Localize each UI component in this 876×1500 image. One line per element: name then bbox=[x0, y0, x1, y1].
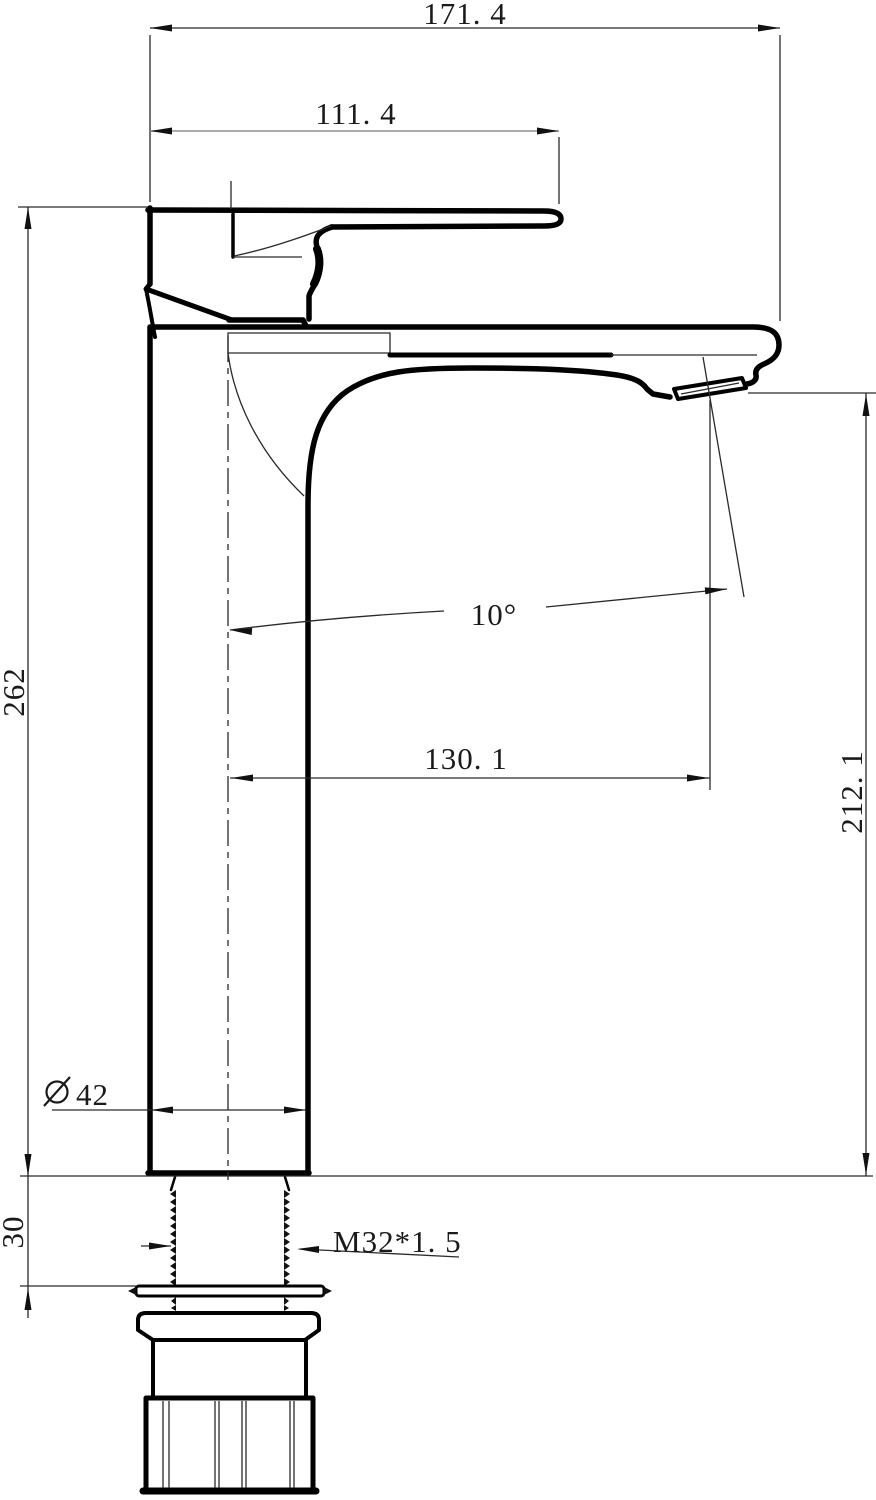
dim-label-outlet-angle: 10° bbox=[471, 597, 517, 632]
dimension-overall-height: 262 bbox=[0, 207, 148, 1176]
dimension-shank-length: 30 bbox=[0, 1176, 136, 1318]
dimension-outlet-reach: 130. 1 bbox=[230, 400, 710, 790]
drawing-canvas: 171. 4 111. 4 262 212. 1 130. 1 10° bbox=[0, 0, 876, 1500]
dim-label-outlet-height: 212. 1 bbox=[834, 750, 869, 834]
thread-shank bbox=[170, 1190, 290, 1286]
dim-label-overall-width: 171. 4 bbox=[423, 0, 507, 31]
dim-label-handle-length: 111. 4 bbox=[315, 96, 396, 131]
diameter-symbol bbox=[44, 1077, 70, 1106]
dimension-outlet-angle: 10° bbox=[230, 586, 728, 636]
dim-label-shank-length: 30 bbox=[0, 1216, 30, 1249]
handle-lever bbox=[146, 181, 561, 337]
faucet-outline bbox=[20, 181, 873, 1491]
dimension-outlet-height: 212. 1 bbox=[748, 393, 876, 1176]
dim-label-body-diameter: 42 bbox=[76, 1077, 109, 1112]
dim-label-thread-spec: M32*1. 5 bbox=[333, 1224, 462, 1259]
dimension-handle-length: 111. 4 bbox=[150, 96, 559, 204]
washer bbox=[128, 1286, 332, 1296]
ribbed-nut bbox=[143, 1398, 316, 1491]
faucet-technical-drawing: 171. 4 111. 4 262 212. 1 130. 1 10° bbox=[0, 0, 876, 1500]
dim-label-outlet-reach: 130. 1 bbox=[424, 741, 508, 776]
dimension-body-diameter: 42 bbox=[44, 1077, 306, 1114]
dim-label-overall-height: 262 bbox=[0, 667, 31, 717]
locknut bbox=[138, 1313, 319, 1340]
dimension-overall-width: 171. 4 bbox=[150, 0, 780, 321]
dimension-thread-spec: M32*1. 5 bbox=[141, 1224, 462, 1259]
mounting-shank bbox=[128, 1177, 332, 1491]
